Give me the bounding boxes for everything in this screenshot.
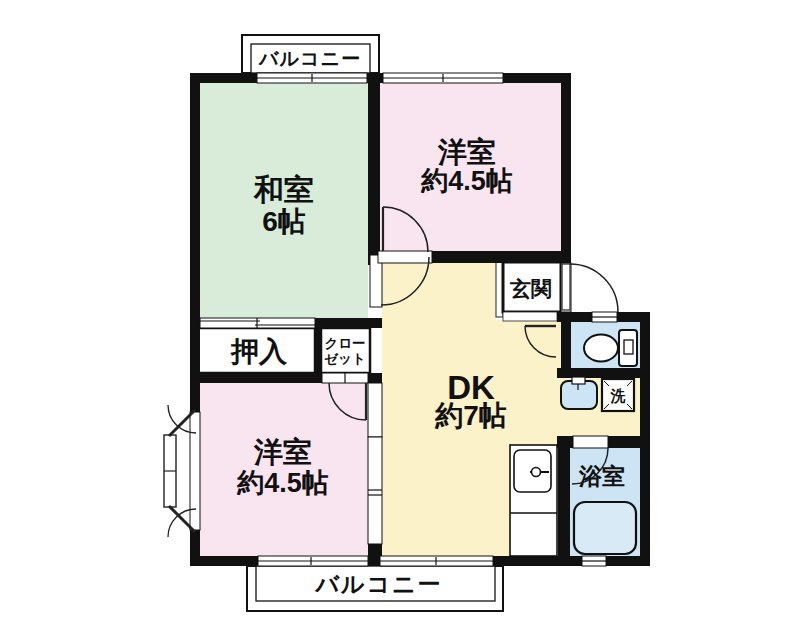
label-washitsu-name: 和室 [253, 173, 314, 206]
doorway-bathroom [573, 436, 608, 448]
label-balcony-bottom: バルコニー [313, 571, 442, 597]
wall-toilet-west [561, 322, 571, 368]
label-yoshitsu-lower-name: 洋室 [253, 436, 312, 468]
genkan-threshold [503, 312, 557, 321]
wall-top [190, 73, 571, 83]
label-yoshitsu-upper-size: 約4.5帖 [420, 166, 513, 196]
label-bathroom: 浴室 [578, 463, 625, 489]
label-yoshitsu-upper-name: 洋室 [437, 136, 496, 168]
label-washitsu-size: 6帖 [262, 206, 306, 237]
wall-closet-divider [315, 328, 321, 373]
wall-toilet-south [557, 368, 650, 378]
label-genkan: 玄関 [509, 277, 552, 300]
label-balcony-top: バルコニー [258, 48, 361, 69]
floorplan-drawing: 和室 6帖 洋室 約4.5帖 DK 約7帖 洋室 約4.5帖 玄関 押入 クロー… [0, 0, 800, 633]
front-door-leaf [562, 264, 570, 310]
bathtub-icon [574, 502, 636, 554]
washbasin-icon [561, 377, 597, 409]
kitchen-counter-icon [510, 445, 557, 556]
label-dk-size: 約7帖 [434, 400, 507, 431]
bay-window-opening [190, 412, 200, 530]
doorway-yoshitsu-upper [378, 251, 432, 263]
floorplan-page: 和室 6帖 洋室 約4.5帖 DK 約7帖 洋室 約4.5帖 玄関 押入 クロー… [0, 0, 800, 633]
dk-floor [382, 263, 496, 322]
doorway-yoshitsu-lower [368, 383, 382, 437]
wall-bathroom-west [558, 448, 570, 556]
label-closet-line2: ゼット [324, 351, 365, 366]
wall-washitsu-yoshitsu [368, 83, 380, 265]
label-yoshitsu-lower-size: 約4.5帖 [236, 468, 329, 498]
label-oshiire: 押入 [230, 336, 288, 367]
label-laundry: 洗 [610, 387, 626, 404]
label-closet-line1: クロー [324, 336, 365, 351]
